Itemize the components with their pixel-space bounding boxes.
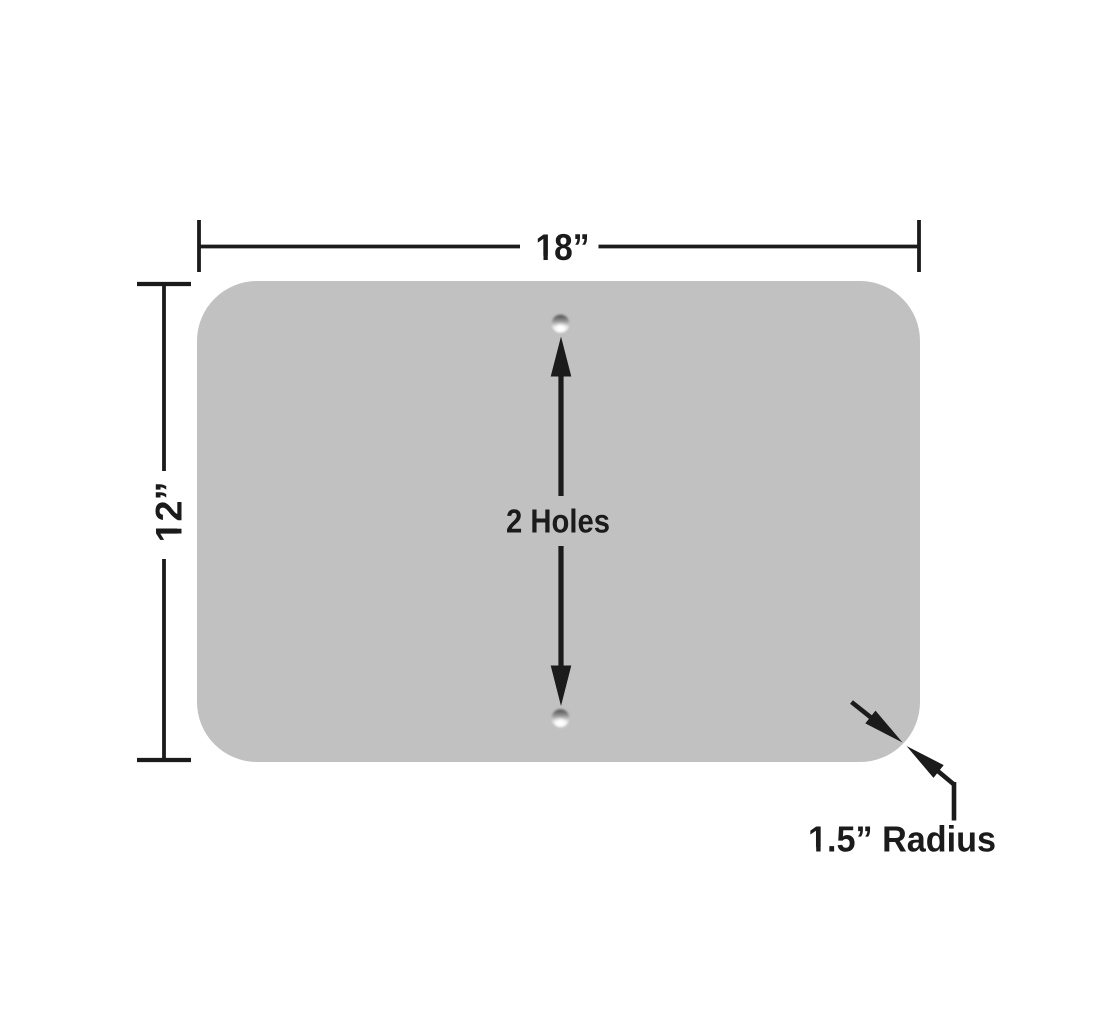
svg-text:12”: 12”: [149, 482, 190, 543]
svg-text:18”: 18”: [536, 227, 590, 268]
svg-text:1.5” Radius: 1.5” Radius: [808, 819, 996, 860]
svg-text:2 Holes: 2 Holes: [506, 504, 610, 541]
